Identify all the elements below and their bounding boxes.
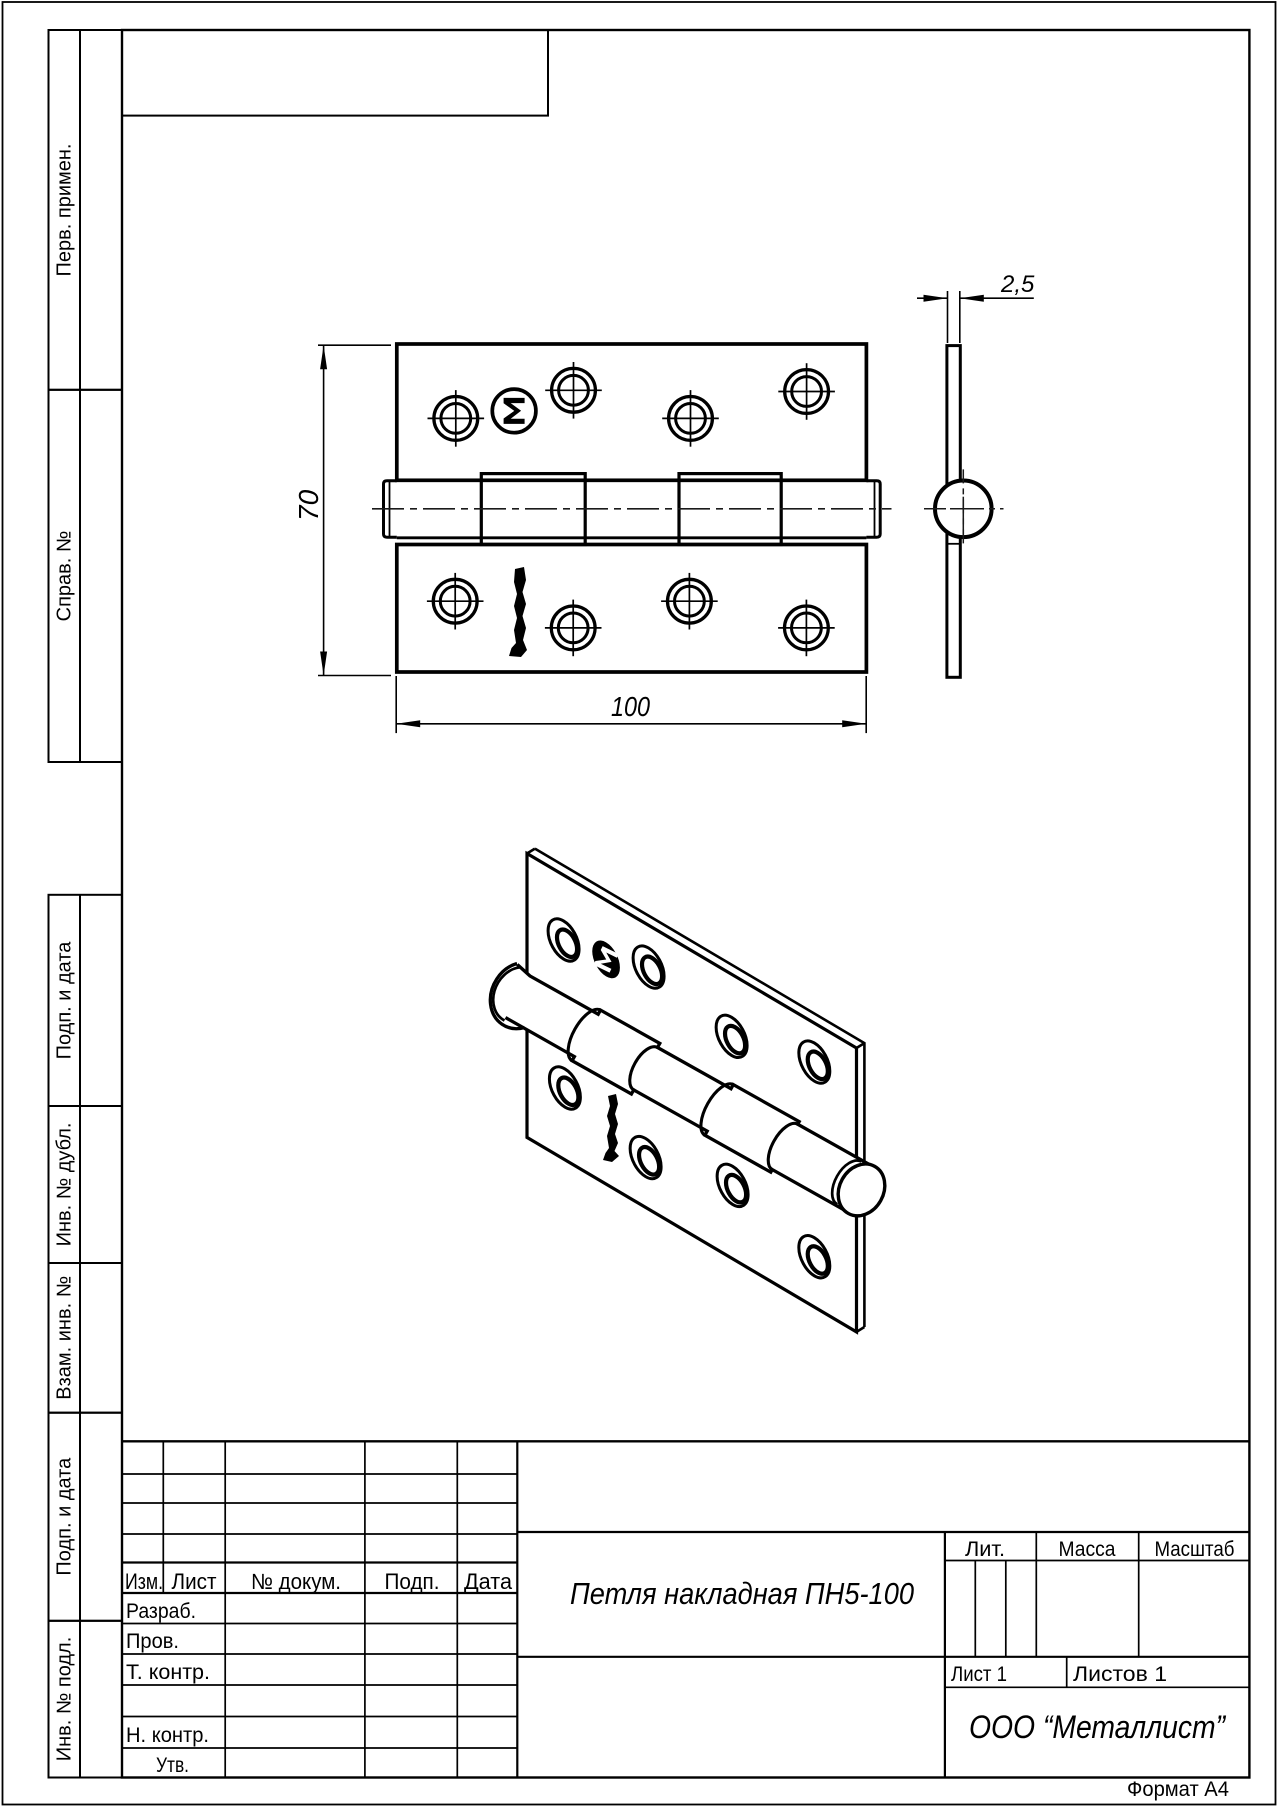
svg-text:Масштаб: Масштаб (1155, 1538, 1235, 1561)
svg-text:Справ. №: Справ. № (54, 531, 76, 622)
svg-text:Взам. инв. №: Взам. инв. № (54, 1276, 76, 1400)
svg-text:№ докум.: № докум. (251, 1569, 341, 1594)
svg-text:Разраб.: Разраб. (126, 1600, 196, 1623)
svg-text:Лист 1: Лист 1 (951, 1663, 1007, 1686)
svg-text:Перв. примен.: Перв. примен. (54, 144, 76, 277)
svg-text:Подп.: Подп. (385, 1569, 440, 1594)
svg-text:Лист: Лист (172, 1569, 217, 1594)
svg-text:Листов 1: Листов 1 (1073, 1663, 1167, 1686)
svg-text:Изм.: Изм. (125, 1569, 163, 1594)
svg-text:Лит.: Лит. (965, 1538, 1005, 1561)
svg-text:Петля накладная ПН5-100: Петля накладная ПН5-100 (570, 1576, 914, 1611)
svg-text:Н. контр.: Н. контр. (126, 1724, 209, 1747)
svg-text:Подп. и дата: Подп. и дата (54, 1457, 76, 1576)
svg-text:Формат А4: Формат А4 (1127, 1778, 1229, 1801)
svg-text:Т. контр.: Т. контр. (126, 1661, 210, 1684)
svg-text:Масса: Масса (1059, 1538, 1116, 1561)
svg-text:Подп. и дата: Подп. и дата (54, 941, 76, 1060)
svg-text:Инв. № дубл.: Инв. № дубл. (54, 1123, 76, 1247)
svg-text:70: 70 (293, 489, 324, 521)
svg-text:100: 100 (611, 691, 650, 722)
svg-text:2,5: 2,5 (1000, 271, 1035, 298)
svg-text:Пров.: Пров. (126, 1630, 179, 1653)
svg-text:Дата: Дата (464, 1569, 513, 1594)
svg-text:ООО “Металлист”: ООО “Металлист” (969, 1709, 1226, 1745)
svg-text:Инв. № подл.: Инв. № подл. (54, 1637, 76, 1762)
svg-text:Утв.: Утв. (156, 1754, 189, 1777)
